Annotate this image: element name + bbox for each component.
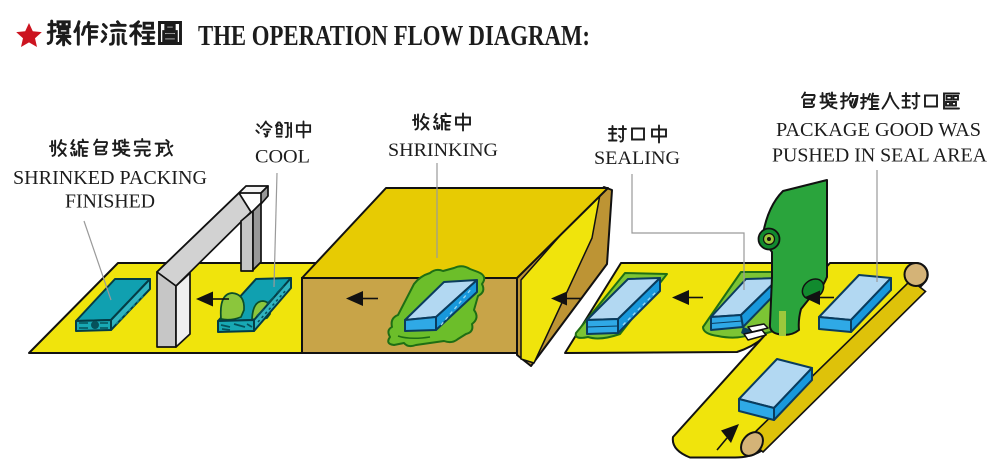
svg-text:SHRINKED PACKING: SHRINKED PACKING xyxy=(13,167,207,189)
svg-text:COOL: COOL xyxy=(255,148,310,168)
svg-text:THE OPERATION FLOW DIAGRAM:: THE OPERATION FLOW DIAGRAM: xyxy=(198,21,590,52)
svg-text:SHRINKING: SHRINKING xyxy=(388,141,498,161)
svg-text:PACKAGE GOOD WAS: PACKAGE GOOD WAS xyxy=(776,120,981,141)
svg-text:SEALING: SEALING xyxy=(594,148,680,169)
svg-text:PUSHED IN SEAL AREA: PUSHED IN SEAL AREA xyxy=(772,146,987,167)
svg-text:FINISHED: FINISHED xyxy=(65,191,155,213)
